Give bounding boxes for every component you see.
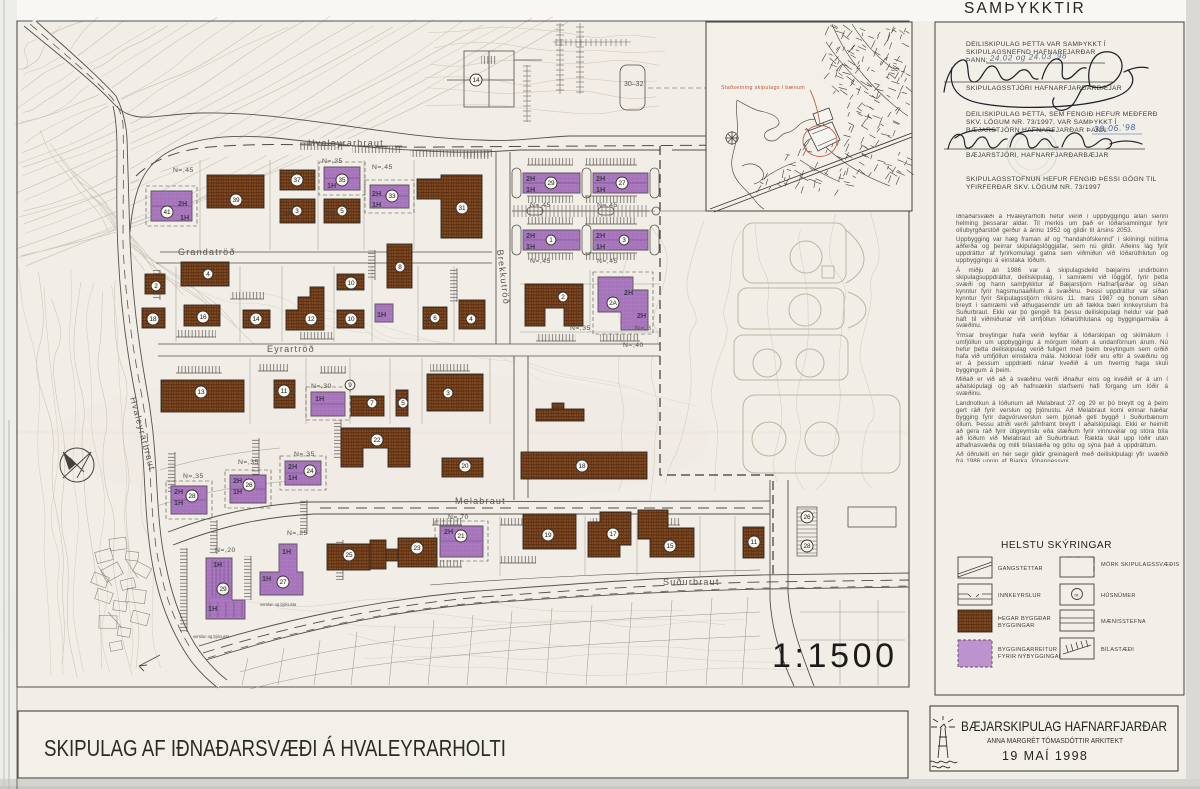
svg-text:13: 13	[197, 389, 205, 396]
svg-text:N=,45: N=,45	[597, 258, 618, 265]
svg-text:HÚSNÚMER: HÚSNÚMER	[1101, 592, 1136, 599]
svg-text:18: 18	[578, 463, 586, 470]
svg-text:4: 4	[469, 316, 473, 323]
svg-text:Melabraut: Melabraut	[455, 496, 506, 506]
svg-text:25: 25	[345, 552, 353, 559]
svg-text:2H: 2H	[444, 527, 453, 536]
svg-text:ÞANN:: ÞANN:	[966, 57, 988, 64]
svg-text:15: 15	[666, 543, 674, 550]
svg-text:N=,45: N=,45	[173, 167, 194, 174]
svg-text:N=,25: N=,25	[287, 530, 308, 537]
svg-text:2H: 2H	[596, 231, 605, 240]
svg-text:2H: 2H	[372, 189, 381, 198]
svg-text:2H: 2H	[637, 311, 646, 320]
svg-text:3: 3	[622, 237, 626, 244]
svg-text:Staðsetning skipulags í bænum: Staðsetning skipulags í bænum	[721, 84, 805, 91]
svg-text:BYGGINGAR: BYGGINGAR	[998, 623, 1035, 629]
svg-text:11: 11	[751, 539, 758, 546]
svg-text:4: 4	[206, 271, 210, 278]
svg-text:26: 26	[803, 514, 811, 521]
svg-text:28: 28	[188, 493, 196, 500]
svg-text:2H: 2H	[174, 487, 183, 496]
svg-text:10: 10	[347, 316, 355, 323]
svg-text:1H: 1H	[283, 209, 292, 218]
svg-text:DEILISKIPULAG ÞETTA, SEM FENGI: DEILISKIPULAG ÞETTA, SEM FENGIÐ HEFUR ME…	[966, 111, 1158, 118]
svg-text:24: 24	[306, 468, 314, 475]
svg-text:41: 41	[163, 209, 171, 216]
svg-text:MÆNISSTEFNA: MÆNISSTEFNA	[1101, 619, 1146, 625]
svg-text:INNKEYRSLUR: INNKEYRSLUR	[998, 593, 1041, 599]
svg-text:1H: 1H	[180, 213, 189, 222]
svg-text:19 MAÍ 1998: 19 MAÍ 1998	[1002, 748, 1088, 763]
svg-text:N=,20: N=,20	[215, 547, 236, 554]
svg-text:verslun og þjónusta: verslun og þjónusta	[260, 602, 297, 607]
svg-text:9: 9	[348, 382, 352, 389]
svg-text:17: 17	[609, 531, 617, 538]
svg-text:ÞEGAR BYGGÐAR: ÞEGAR BYGGÐAR	[998, 616, 1051, 622]
svg-text:Grandatröð: Grandatröð	[178, 247, 236, 257]
svg-text:1H: 1H	[288, 473, 297, 482]
svg-text:N=,3: N=,3	[635, 325, 652, 332]
svg-text:1H: 1H	[213, 560, 222, 569]
svg-text:HELSTU SKÝRINGAR: HELSTU SKÝRINGAR	[1001, 538, 1112, 551]
svg-text:BÍLASTÆÐI: BÍLASTÆÐI	[1101, 646, 1134, 653]
svg-text:3: 3	[295, 208, 299, 215]
svg-text:DEILISKIPULAG ÞETTA VAR SAMÞYK: DEILISKIPULAG ÞETTA VAR SAMÞYKKT Í	[966, 39, 1106, 48]
svg-text:31: 31	[458, 205, 466, 212]
svg-text:Suðurbraut: Suðurbraut	[663, 577, 720, 587]
svg-text:N=,35: N=,35	[294, 451, 315, 458]
svg-text:ANNA MARGRÉT TÓMASDÓTTIR ARKIT: ANNA MARGRÉT TÓMASDÓTTIR ARKITEKT	[987, 736, 1123, 745]
svg-text:10: 10	[347, 280, 355, 287]
svg-text:N=,45: N=,45	[530, 258, 551, 265]
svg-text:20: 20	[461, 463, 469, 470]
svg-text:1H: 1H	[526, 185, 535, 194]
svg-text:1H: 1H	[208, 604, 217, 613]
svg-text:1H: 1H	[596, 185, 605, 194]
svg-text:2H: 2H	[178, 199, 187, 208]
svg-text:3: 3	[446, 390, 450, 397]
svg-text:BÆJARSTJÓRI, HAFNARFJARÐARBÆJA: BÆJARSTJÓRI, HAFNARFJARÐARBÆJAR	[966, 150, 1109, 159]
svg-text:12: 12	[307, 316, 315, 323]
svg-text:N=,35: N=,35	[322, 158, 343, 165]
svg-text:1H: 1H	[315, 394, 324, 403]
svg-text:2H: 2H	[596, 174, 605, 183]
svg-text:GANGSTÉTTAR: GANGSTÉTTAR	[998, 565, 1043, 572]
svg-text:5: 5	[340, 208, 344, 215]
svg-text:1H: 1H	[282, 547, 291, 556]
svg-text:1H: 1H	[327, 181, 336, 190]
svg-text:N=,45: N=,45	[530, 202, 551, 209]
svg-text:2A: 2A	[609, 300, 618, 307]
svg-text:N=,35: N=,35	[570, 325, 591, 332]
svg-text:SKIPULAG AF IÐNAÐARSVÆÐI Á HVA: SKIPULAG AF IÐNAÐARSVÆÐI Á HVALEYRARHOLT…	[44, 735, 506, 761]
svg-text:SAMÞYKKTIR: SAMÞYKKTIR	[964, 0, 1086, 17]
svg-text:2H: 2H	[526, 174, 535, 183]
svg-text:6: 6	[433, 315, 437, 322]
svg-text:1:1500: 1:1500	[772, 637, 898, 675]
svg-text:N=,30: N=,30	[311, 383, 332, 390]
svg-text:18: 18	[149, 316, 157, 323]
svg-text:FYRIR NÝBYGGINGAR: FYRIR NÝBYGGINGAR	[998, 653, 1063, 660]
svg-text:YFIRFERÐAR SKV. LÖGUM NR. 73/1: YFIRFERÐAR SKV. LÖGUM NR. 73/1997	[966, 183, 1101, 191]
svg-text:8: 8	[398, 264, 402, 271]
svg-text:29: 29	[547, 180, 555, 187]
svg-text:27: 27	[618, 180, 626, 187]
svg-text:22: 22	[373, 437, 381, 444]
svg-text:19: 19	[544, 532, 552, 539]
svg-text:39: 39	[232, 197, 240, 204]
svg-text:37: 37	[293, 177, 301, 184]
svg-text:2H: 2H	[624, 288, 633, 297]
svg-text:BYGGINGARREITUR: BYGGINGARREITUR	[998, 647, 1057, 653]
svg-text:27: 27	[279, 579, 287, 586]
svg-text:23: 23	[413, 545, 421, 552]
svg-text:2H: 2H	[288, 462, 297, 471]
svg-text:7: 7	[370, 400, 374, 407]
svg-text:SKIPULAGSSTOFNUN HEFUR FENGIÐ: SKIPULAGSSTOFNUN HEFUR FENGIÐ ÞESSI GÖGN…	[966, 175, 1157, 183]
svg-text:verslun og þjónusta: verslun og þjónusta	[193, 634, 230, 639]
svg-text:N=,35: N=,35	[183, 473, 204, 480]
svg-text:Hvaleyrarbraut: Hvaleyrarbraut	[308, 138, 384, 148]
svg-text:1H: 1H	[596, 242, 605, 251]
svg-text:29: 29	[219, 586, 227, 593]
svg-text:N=,45: N=,45	[372, 164, 393, 171]
svg-text:MÖRK SKIPULAGSSVÆÐIS: MÖRK SKIPULAGSSVÆÐIS	[1101, 561, 1179, 568]
svg-text:1H: 1H	[262, 574, 271, 583]
svg-text:28: 28	[803, 543, 811, 550]
svg-text:SKIPULAGSSTJÓRI HAFNARFJARÐARB: SKIPULAGSSTJÓRI HAFNARFJARÐARBÆJAR	[966, 83, 1122, 92]
svg-text:1: 1	[549, 237, 553, 244]
svg-text:1H: 1H	[174, 498, 183, 507]
svg-text:2H: 2H	[526, 231, 535, 240]
svg-text:16: 16	[199, 314, 207, 321]
svg-text:N=,45: N=,45	[597, 202, 618, 209]
svg-text:1H: 1H	[326, 209, 335, 218]
svg-text:1H: 1H	[233, 487, 242, 496]
svg-text:N=,35: N=,35	[238, 459, 259, 466]
svg-text:N=,70: N=,70	[448, 514, 469, 521]
svg-text:Eyrartröð: Eyrartröð	[267, 344, 315, 354]
svg-text:BÆJARSKIPULAG HAFNARFJARÐAR: BÆJARSKIPULAG HAFNARFJARÐAR	[961, 718, 1167, 734]
svg-text:2H: 2H	[233, 476, 242, 485]
svg-text:30–32: 30–32	[624, 81, 644, 88]
svg-text:5: 5	[401, 400, 405, 407]
svg-text:14: 14	[252, 316, 260, 323]
svg-text:2: 2	[154, 283, 158, 290]
svg-text:33: 33	[388, 193, 396, 200]
svg-text:26: 26	[245, 482, 253, 489]
svg-text:2: 2	[561, 294, 565, 301]
svg-text:N=,40: N=,40	[623, 342, 644, 349]
svg-text:14: 14	[472, 77, 480, 84]
svg-text:1H: 1H	[526, 242, 535, 251]
svg-text:1H: 1H	[372, 200, 381, 209]
svg-text:35: 35	[338, 177, 346, 184]
svg-text:11: 11	[281, 388, 288, 395]
svg-text:nr.: nr.	[1074, 593, 1079, 598]
svg-text:1H: 1H	[377, 310, 386, 319]
svg-text:21: 21	[457, 533, 465, 540]
